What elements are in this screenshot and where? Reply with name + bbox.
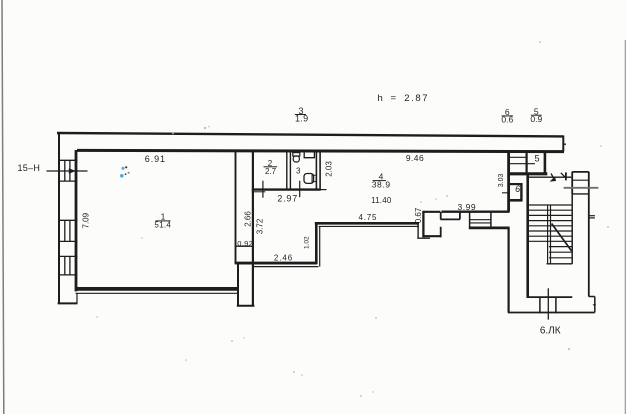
svg-text:2.87: 2.87	[404, 93, 429, 104]
svg-text:3.72: 3.72	[256, 218, 265, 234]
svg-text:0.92: 0.92	[237, 239, 253, 248]
svg-text:2.97: 2.97	[277, 194, 298, 204]
svg-text:3: 3	[296, 167, 301, 176]
svg-text:7.09: 7.09	[82, 212, 91, 228]
svg-text:6.ЛК: 6.ЛК	[540, 326, 561, 337]
svg-text:=: =	[391, 92, 397, 103]
svg-text:4.75: 4.75	[359, 213, 378, 222]
svg-text:15–Н: 15–Н	[18, 163, 41, 173]
svg-text:2.66: 2.66	[244, 211, 253, 227]
svg-text:2.03: 2.03	[325, 161, 334, 177]
svg-text:5: 5	[534, 154, 539, 164]
svg-text:0.67: 0.67	[414, 207, 423, 223]
svg-text:3.99: 3.99	[458, 202, 477, 212]
svg-text:9.46: 9.46	[406, 153, 424, 163]
svg-text:2.46: 2.46	[274, 254, 293, 263]
svg-text:2.7: 2.7	[265, 167, 277, 176]
svg-text:11.40: 11.40	[371, 196, 392, 205]
svg-text:1.9: 1.9	[295, 114, 308, 124]
svg-text:3.03: 3.03	[498, 173, 505, 187]
svg-text:6.91: 6.91	[145, 154, 166, 164]
svg-text:h: h	[378, 93, 383, 104]
svg-text:51.4: 51.4	[154, 221, 171, 230]
svg-text:6: 6	[515, 184, 520, 194]
svg-text:1.02: 1.02	[304, 236, 311, 249]
